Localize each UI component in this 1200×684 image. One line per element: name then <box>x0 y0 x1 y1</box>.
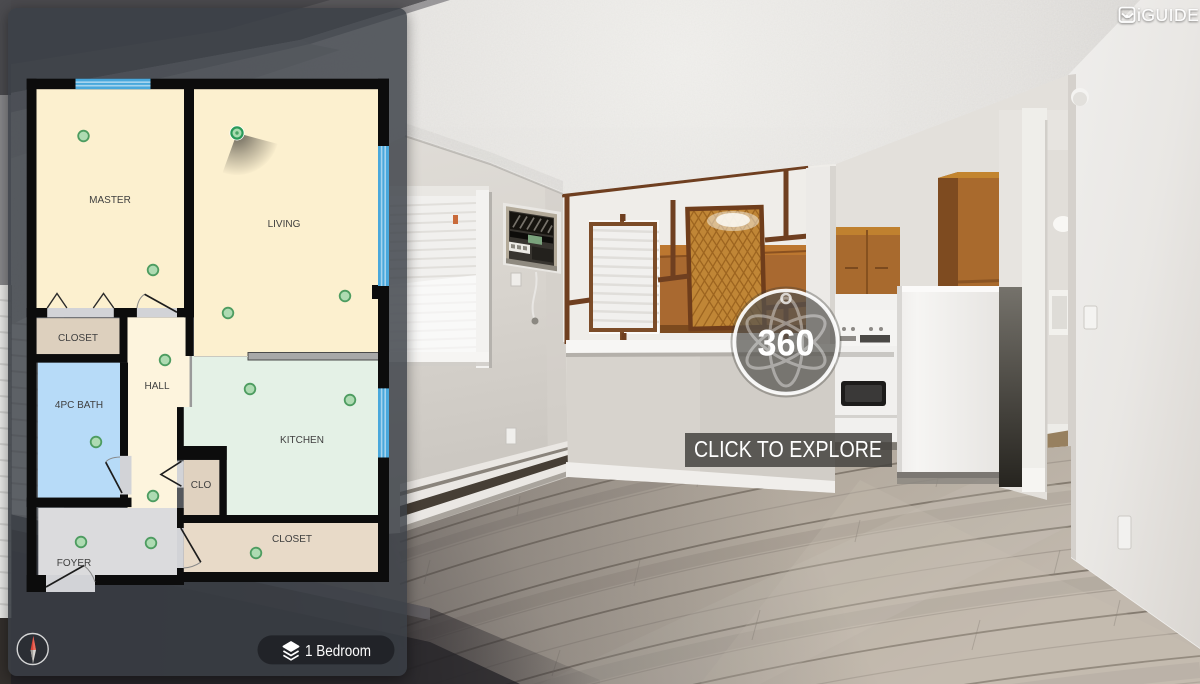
svg-text:MASTER: MASTER <box>89 195 131 206</box>
svg-text:iGUIDE: iGUIDE <box>1137 5 1199 25</box>
svg-text:HALL: HALL <box>144 381 169 392</box>
svg-text:CLO: CLO <box>191 480 212 491</box>
svg-text:4PC BATH: 4PC BATH <box>55 400 103 411</box>
svg-text:CLOSET: CLOSET <box>58 333 98 344</box>
svg-text:FOYER: FOYER <box>57 558 91 569</box>
svg-text:360: 360 <box>758 323 815 364</box>
svg-text:1 Bedroom: 1 Bedroom <box>305 643 371 660</box>
svg-text:LIVING: LIVING <box>268 219 301 230</box>
svg-text:CLOSET: CLOSET <box>272 534 312 545</box>
svg-text:CLICK TO EXPLORE: CLICK TO EXPLORE <box>694 436 882 462</box>
svg-text:KITCHEN: KITCHEN <box>280 435 324 446</box>
